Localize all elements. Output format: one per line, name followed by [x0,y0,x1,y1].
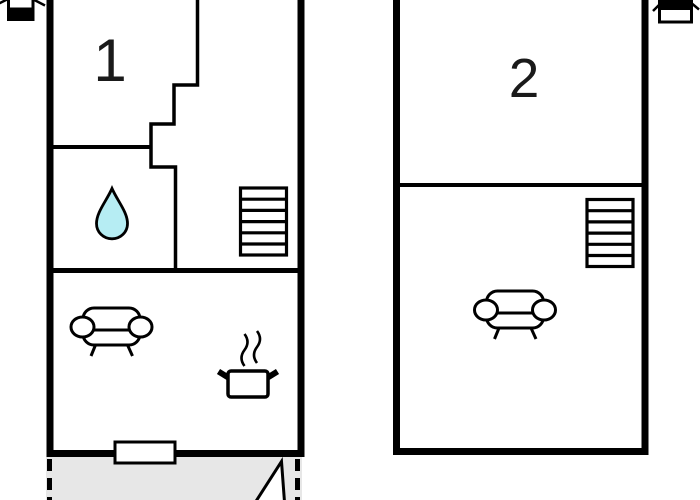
room-label-2: 2 [509,47,540,109]
door-opening [115,442,175,463]
floor-plan-canvas: 1 2 [0,0,700,500]
stairs-icon-unit-2 [587,200,633,267]
lamp-box-right-fill [660,0,692,10]
stairs-icon-unit-1 [241,188,287,255]
ceiling-lamp-icon-right [653,0,699,22]
room-label-1: 1 [93,27,126,94]
pot-body [228,371,268,397]
floor-plan-drawing: 1 2 [0,0,700,500]
lamp-box-left-fill [9,8,34,20]
